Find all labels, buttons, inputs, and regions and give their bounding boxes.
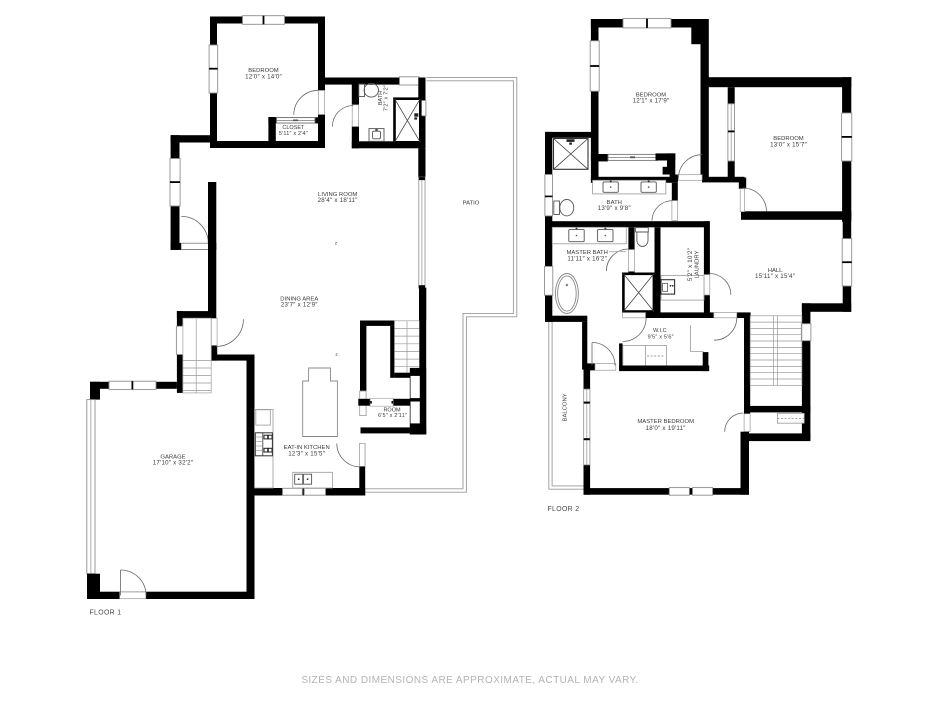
svg-text:SIZES AND DIMENSIONS ARE APPRO: SIZES AND DIMENSIONS ARE APPROXIMATE, AC… bbox=[301, 675, 638, 686]
svg-text:6′5″ x 2′11″: 6′5″ x 2′11″ bbox=[378, 413, 407, 419]
svg-text:FLOOR 1: FLOOR 1 bbox=[90, 610, 122, 617]
svg-text:W.I.C: W.I.C bbox=[653, 328, 666, 334]
svg-text:17′10″ x 32′2″: 17′10″ x 32′2″ bbox=[153, 460, 194, 467]
svg-text:28′4″ x 18′11″: 28′4″ x 18′11″ bbox=[318, 197, 359, 204]
svg-text:12′0″ x 14′0″: 12′0″ x 14′0″ bbox=[245, 73, 282, 80]
svg-text:13′0″ x 15′7″: 13′0″ x 15′7″ bbox=[770, 141, 807, 148]
svg-text:9′5″ x 5′6″: 9′5″ x 5′6″ bbox=[648, 335, 674, 341]
svg-text:7′2″ x 7′2″: 7′2″ x 7′2″ bbox=[383, 85, 389, 111]
svg-text:18′0″ x 19′11″: 18′0″ x 19′11″ bbox=[646, 425, 687, 432]
svg-text:5′2″ x 10′2″: 5′2″ x 10′2″ bbox=[687, 247, 694, 281]
svg-text:13′9″ x 9′8″: 13′9″ x 9′8″ bbox=[598, 205, 632, 212]
svg-text:5′11″ x 2′4″: 5′11″ x 2′4″ bbox=[279, 131, 308, 137]
svg-text:LAUNDRY: LAUNDRY bbox=[695, 250, 701, 278]
svg-text:11′11″ x 16′2″: 11′11″ x 16′2″ bbox=[567, 255, 607, 262]
svg-text:BALCONY: BALCONY bbox=[562, 393, 568, 421]
svg-text:PATIO: PATIO bbox=[463, 201, 480, 207]
svg-text:12′3″ x 15′5″: 12′3″ x 15′5″ bbox=[288, 451, 325, 458]
svg-text:FLOOR 2: FLOOR 2 bbox=[548, 506, 580, 513]
svg-text:23′7″ x 12′9″: 23′7″ x 12′9″ bbox=[281, 302, 318, 309]
svg-text:15′11″ x 15′4″: 15′11″ x 15′4″ bbox=[755, 273, 796, 280]
svg-text:12′1″ x 17′9″: 12′1″ x 17′9″ bbox=[633, 98, 670, 105]
